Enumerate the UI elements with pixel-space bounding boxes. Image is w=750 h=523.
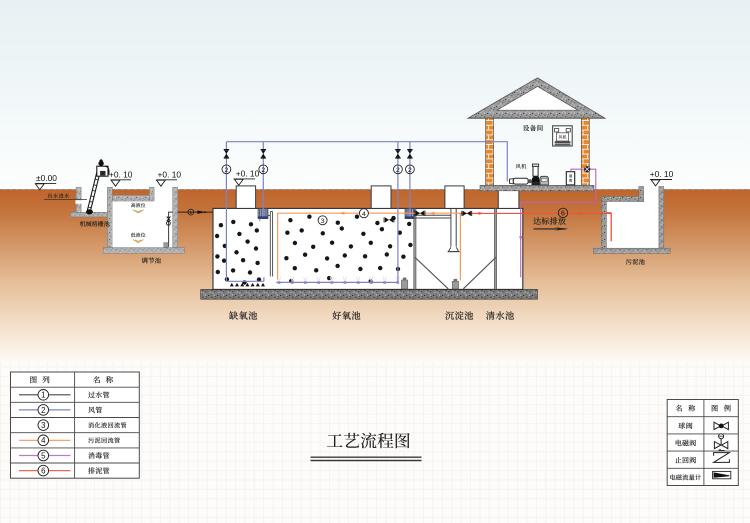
svg-text:4: 4 (41, 436, 46, 445)
svg-text:1: 1 (41, 391, 45, 400)
svg-text:2: 2 (41, 406, 45, 415)
svg-text:+0. 10: +0. 10 (109, 169, 133, 179)
svg-text:6: 6 (41, 467, 45, 476)
svg-text:2: 2 (261, 167, 265, 174)
svg-text:3: 3 (41, 421, 45, 430)
svg-text:2: 2 (396, 167, 400, 174)
svg-text:1: 1 (190, 210, 193, 215)
svg-text:5: 5 (41, 451, 46, 460)
svg-text:4: 4 (362, 211, 366, 218)
svg-text:2: 2 (225, 167, 229, 174)
svg-text:+0. 10: +0. 10 (158, 169, 182, 179)
svg-text:3: 3 (321, 218, 325, 225)
svg-text:+0. 10: +0. 10 (236, 169, 260, 179)
svg-text:6: 6 (561, 211, 565, 218)
svg-text:±0.00: ±0.00 (36, 173, 57, 183)
svg-text:2: 2 (408, 167, 412, 174)
svg-text:+0. 10: +0. 10 (650, 169, 674, 179)
